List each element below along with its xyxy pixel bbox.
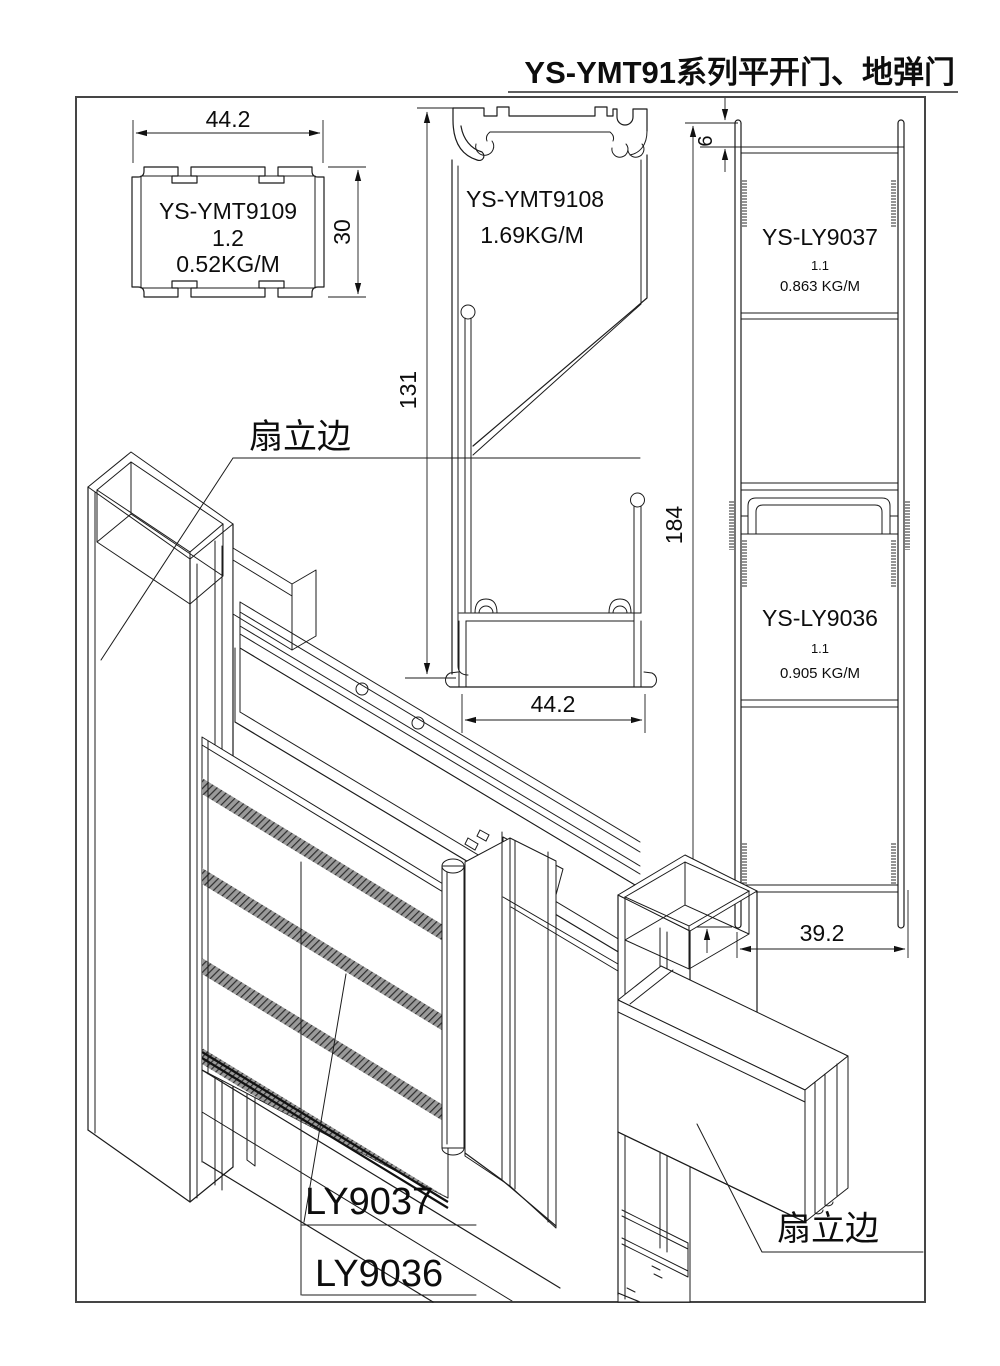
label-sash-edge-left: 扇立边 [249,418,351,456]
round-glazing-bead [442,866,464,1148]
profile-ymt9108-section: 131 44.2 YS-YMT9108 1.69KG/M [395,107,657,733]
profile-ymt9109-section: 44.2 30 YS-YMT9109 1.2 0.52KG/M [132,106,366,297]
dim-ly-width: 39.2 [800,920,845,946]
label-ly9037: LY9037 [305,1181,433,1223]
drawing-sheet: YS-YMT91系列平开门、地弹门 44.2 30 YS-YMT9109 1.2… [0,0,1000,1366]
isometric-assembly [88,452,848,1302]
label-ly9036: LY9036 [315,1253,443,1295]
profile-ly9036-weight: 0.905 KG/M [780,665,860,682]
profile-ly9037-weight: 0.863 KG/M [780,278,860,295]
profile-ly9037-thickness: 1.1 [811,258,829,273]
sheet-title: YS-YMT91系列平开门、地弹门 [524,55,955,90]
profile-9109-weight: 0.52KG/M [176,251,280,277]
top-rail-bracket [233,548,316,650]
profile-ly-section: 184 6 8 39.2 YS-LY9037 1.1 0.863 KG/M YS… [661,98,910,958]
dim-9109-width: 44.2 [206,106,251,132]
cad-drawing: YS-YMT91系列平开门、地弹门 44.2 30 YS-YMT9109 1.2… [0,0,1000,1366]
dim-9108-height: 131 [395,371,421,409]
profile-ly9037-name: YS-LY9037 [762,224,878,250]
label-sash-edge-right: 扇立边 [777,1210,879,1248]
profile-9108-weight: 1.69KG/M [480,222,584,248]
profile-9109-name: YS-YMT9109 [159,198,297,224]
dim-ly-top: 6 [695,135,717,146]
dim-9109-height: 30 [329,219,355,245]
profile-9108-name: YS-YMT9108 [466,186,604,212]
profile-9109-thickness: 1.2 [212,225,244,251]
profile-ly9036-thickness: 1.1 [811,641,829,656]
dim-9108-width: 44.2 [531,691,576,717]
profile-ly9036-name: YS-LY9036 [762,605,878,631]
dim-ly-height: 184 [661,506,687,545]
